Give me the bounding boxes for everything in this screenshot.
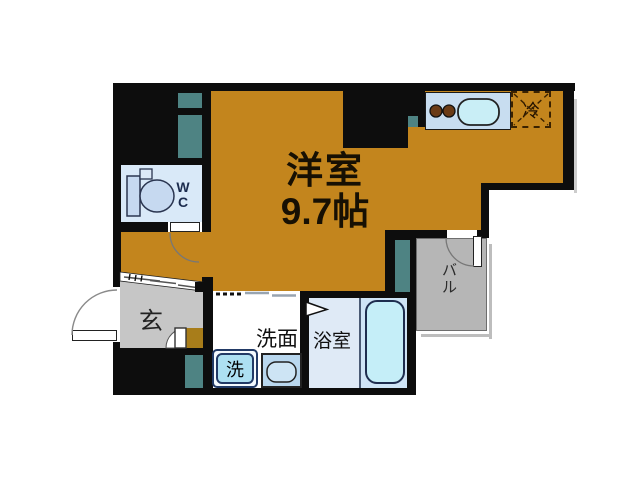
- toilet-flush-icon: [140, 169, 152, 179]
- bath-door-marker: [306, 302, 327, 316]
- vanity-label: 洗面: [256, 323, 298, 353]
- entrance-label: 玄: [139, 301, 163, 336]
- balcony-label: バル: [441, 262, 458, 296]
- main-room-size: 9.7帖: [230, 192, 420, 232]
- kitchen-sink-icon: [458, 99, 499, 125]
- wc-label: WC: [173, 180, 193, 210]
- entrance-door-arc: [72, 290, 117, 335]
- plan-symbols-layer: [0, 0, 640, 480]
- refrigerator-cross-lines: [514, 94, 548, 125]
- entrance-step: [187, 328, 204, 348]
- entrance-wall-chunk: [195, 282, 204, 292]
- bathroom-label: 浴室: [313, 326, 351, 353]
- wc-door-arc: [170, 233, 199, 262]
- stove-burner-icon-1: [430, 105, 442, 117]
- toilet-tank-icon: [127, 176, 140, 216]
- floor-plan: 冷 洗: [0, 0, 640, 480]
- bathtub: [366, 301, 404, 383]
- main-room-name: 洋室: [230, 150, 420, 192]
- vanity-door-rails: [245, 293, 296, 296]
- stove-burner-icon-2: [443, 105, 455, 117]
- vanity-basin-icon: [267, 362, 296, 382]
- entrance-inner-door-leaf: [175, 328, 186, 348]
- toilet-bowl-icon: [140, 180, 174, 212]
- main-room-label: 洋室 9.7帖: [230, 150, 420, 232]
